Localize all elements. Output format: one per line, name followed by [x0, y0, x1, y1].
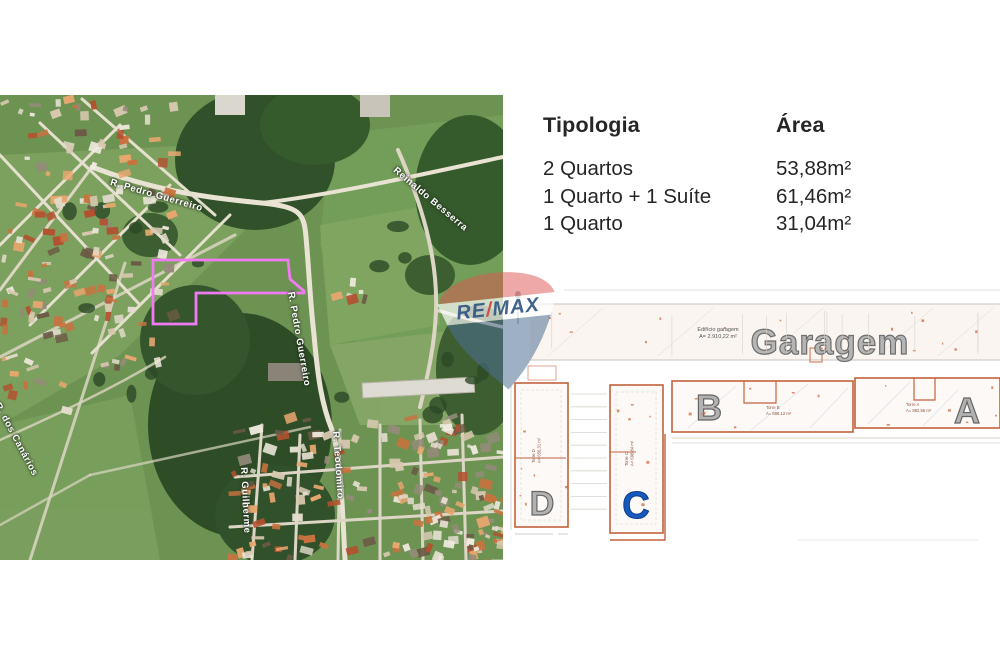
- tree-dot: [369, 260, 389, 272]
- roof-block: [10, 371, 19, 377]
- satellite-map-art: [0, 95, 503, 560]
- plan-mark: [724, 327, 726, 329]
- table-row-area: 31,04m²: [776, 210, 851, 238]
- satellite-map: R. Pedro Guerreiro Reinaldo Besserra R. …: [0, 95, 503, 560]
- roof-block: [123, 106, 129, 111]
- roof-block: [367, 509, 373, 514]
- roof-block: [90, 196, 99, 207]
- roof-block: [168, 151, 181, 156]
- roof-block: [452, 490, 457, 494]
- roof-block: [117, 129, 125, 139]
- garage-title: Garagem: [751, 323, 910, 362]
- roof-block: [131, 261, 142, 266]
- typology-table: Tipologia Área 2 Quartos 53,88m² 1 Quart…: [543, 112, 851, 238]
- plan-mark: [704, 412, 706, 415]
- plan-mark: [649, 416, 650, 418]
- roof-block: [455, 483, 462, 489]
- plan-mark: [818, 395, 820, 398]
- plan-mark: [921, 319, 924, 322]
- tower-c-note1: Torre C: [624, 452, 629, 466]
- tree-dot: [78, 303, 95, 313]
- plan-mark: [520, 495, 522, 496]
- plan-mark: [523, 431, 526, 433]
- roof-block: [466, 534, 474, 538]
- roof-block: [108, 328, 116, 336]
- roof-block: [145, 115, 150, 125]
- roof-block: [408, 498, 414, 505]
- tower-d-note2: A= 656,31 m²: [537, 437, 542, 463]
- site-plan-drawing: Edifício garagem A= 2.910,22 m² Garagem …: [508, 268, 1000, 548]
- plan-mark: [911, 312, 912, 314]
- remax-re: RE: [455, 299, 487, 324]
- remax-balloon-watermark: RE/MAX: [430, 258, 570, 406]
- table-row-area: 61,46m²: [776, 183, 851, 211]
- roof-block: [169, 102, 179, 112]
- roof-block: [151, 227, 163, 234]
- roof-block: [164, 264, 174, 273]
- roof-block: [496, 541, 503, 550]
- col-header-area: Área: [776, 112, 851, 155]
- plan-mark: [885, 385, 886, 386]
- roof-block: [272, 523, 281, 529]
- roof-block: [290, 446, 299, 452]
- roof-block: [381, 433, 387, 442]
- tower-letter-d: D: [530, 485, 555, 523]
- roof-block: [2, 300, 8, 307]
- roof-block: [25, 156, 30, 160]
- plan-mark: [792, 392, 795, 393]
- garage-note-line2: A= 2.910,22 m²: [699, 334, 737, 340]
- tree-dot: [93, 372, 105, 387]
- roof-block: [122, 273, 133, 278]
- plan-mark: [955, 348, 957, 351]
- roof-block: [438, 555, 444, 560]
- roof-block: [439, 520, 448, 528]
- roof-block: [292, 514, 303, 522]
- roof-block: [128, 307, 136, 313]
- roof-block: [114, 364, 120, 371]
- roof-block: [56, 99, 61, 107]
- tower-letter-c: C: [622, 485, 649, 527]
- roof-block: [63, 171, 73, 181]
- plan-mark: [780, 320, 782, 322]
- roof-block: [30, 113, 35, 117]
- roof-block: [112, 235, 120, 240]
- plan-mark: [645, 341, 647, 343]
- plan-mark: [966, 422, 968, 423]
- table-row-type: 2 Quartos: [543, 155, 776, 183]
- tree-dot: [334, 392, 349, 403]
- tree-dot: [127, 385, 137, 403]
- roof-block: [427, 447, 440, 458]
- table-row-area: 53,88m²: [776, 155, 851, 183]
- roof-block: [158, 158, 168, 168]
- listing-composite-image: R. Pedro Guerreiro Reinaldo Besserra R. …: [0, 0, 1000, 667]
- plan-mark: [948, 409, 951, 411]
- roof-block: [149, 137, 161, 142]
- tree-dot: [398, 252, 412, 263]
- roof-block: [447, 449, 459, 456]
- plan-mark: [659, 318, 661, 320]
- roof-block: [424, 516, 433, 524]
- tower-a-note2: A= 982,56 m²: [906, 408, 932, 413]
- plan-mark: [913, 350, 916, 351]
- roof-block: [458, 472, 467, 481]
- roof-block: [93, 247, 100, 256]
- roof-block: [157, 249, 168, 259]
- roof-block: [455, 424, 460, 432]
- plan-mark: [646, 461, 649, 464]
- roof-block: [66, 144, 73, 154]
- roof-block: [19, 308, 24, 317]
- plan-mark: [942, 343, 943, 345]
- roof-block: [2, 324, 8, 334]
- roof-block: [252, 536, 265, 539]
- tower-d-note1: Torre D: [531, 449, 536, 463]
- tower-a-note1: Torre A: [906, 402, 919, 407]
- tower-c-note2: A= 698,84 m²: [630, 440, 635, 466]
- plan-mark: [617, 409, 620, 412]
- roof-block: [106, 227, 118, 235]
- plan-mark: [995, 415, 997, 417]
- tree-dot: [145, 367, 158, 379]
- plan-mark: [631, 404, 634, 406]
- table-row-type: 1 Quarto + 1 Suíte: [543, 183, 776, 211]
- balloon-blue-panel: [447, 315, 558, 395]
- roof-block: [35, 212, 46, 218]
- roof-block: [114, 314, 124, 323]
- roof-block: [287, 477, 293, 487]
- roof-block: [43, 228, 56, 235]
- tree-dot: [387, 221, 409, 232]
- roof-block: [433, 530, 442, 540]
- roof-block: [75, 129, 87, 136]
- roof-block: [16, 236, 23, 243]
- plan-mark: [565, 486, 568, 488]
- plan-mark: [887, 424, 890, 426]
- roof-block: [263, 483, 268, 487]
- roof-block: [105, 303, 112, 312]
- plan-mark: [628, 418, 631, 420]
- tower-b-note2: A= 698,12 m²: [766, 411, 792, 416]
- roof-block: [359, 290, 364, 294]
- plan-mark: [975, 330, 977, 333]
- plan-mark: [891, 328, 893, 331]
- plan-mark: [689, 413, 692, 416]
- roof-block: [109, 274, 117, 282]
- roof-block: [62, 195, 68, 202]
- roof-block: [127, 160, 137, 166]
- plan-mark: [991, 386, 993, 389]
- roof-block: [80, 111, 89, 121]
- roof-block: [28, 133, 37, 139]
- col-header-tipologia: Tipologia: [543, 112, 776, 155]
- plan-mark: [641, 503, 644, 506]
- roof-block: [324, 456, 329, 464]
- roof-block: [367, 419, 379, 428]
- roof-block: [275, 430, 284, 435]
- plan-mark: [534, 474, 535, 476]
- tower-letter-a: A: [954, 390, 980, 431]
- roof-block: [138, 322, 146, 326]
- roof-block: [149, 337, 155, 346]
- roof-block: [36, 161, 48, 172]
- parking-strip: [571, 394, 607, 509]
- roof-block: [394, 462, 404, 472]
- site-plan: Edifício garagem A= 2.910,22 m² Garagem …: [508, 268, 1000, 548]
- roof-block: [33, 301, 43, 309]
- roof-block: [28, 271, 34, 277]
- plan-mark: [525, 503, 527, 506]
- garage-note-line1: Edifício garagem: [697, 327, 739, 333]
- tower-letter-b: B: [696, 387, 722, 428]
- roof-block: [350, 278, 356, 287]
- roof-block: [161, 282, 169, 285]
- plan-mark: [695, 398, 698, 400]
- roof-block: [92, 228, 99, 234]
- plan-mark: [521, 468, 522, 469]
- table-row-type: 1 Quarto: [543, 210, 776, 238]
- plan-mark: [749, 388, 751, 390]
- plan-mark: [734, 426, 736, 428]
- roof-block: [59, 233, 68, 243]
- plan-mark: [570, 331, 573, 332]
- tower-b-note1: Torre B: [766, 405, 780, 410]
- roof-block: [468, 544, 473, 549]
- tree-dot: [129, 222, 142, 234]
- roof-block: [99, 219, 108, 226]
